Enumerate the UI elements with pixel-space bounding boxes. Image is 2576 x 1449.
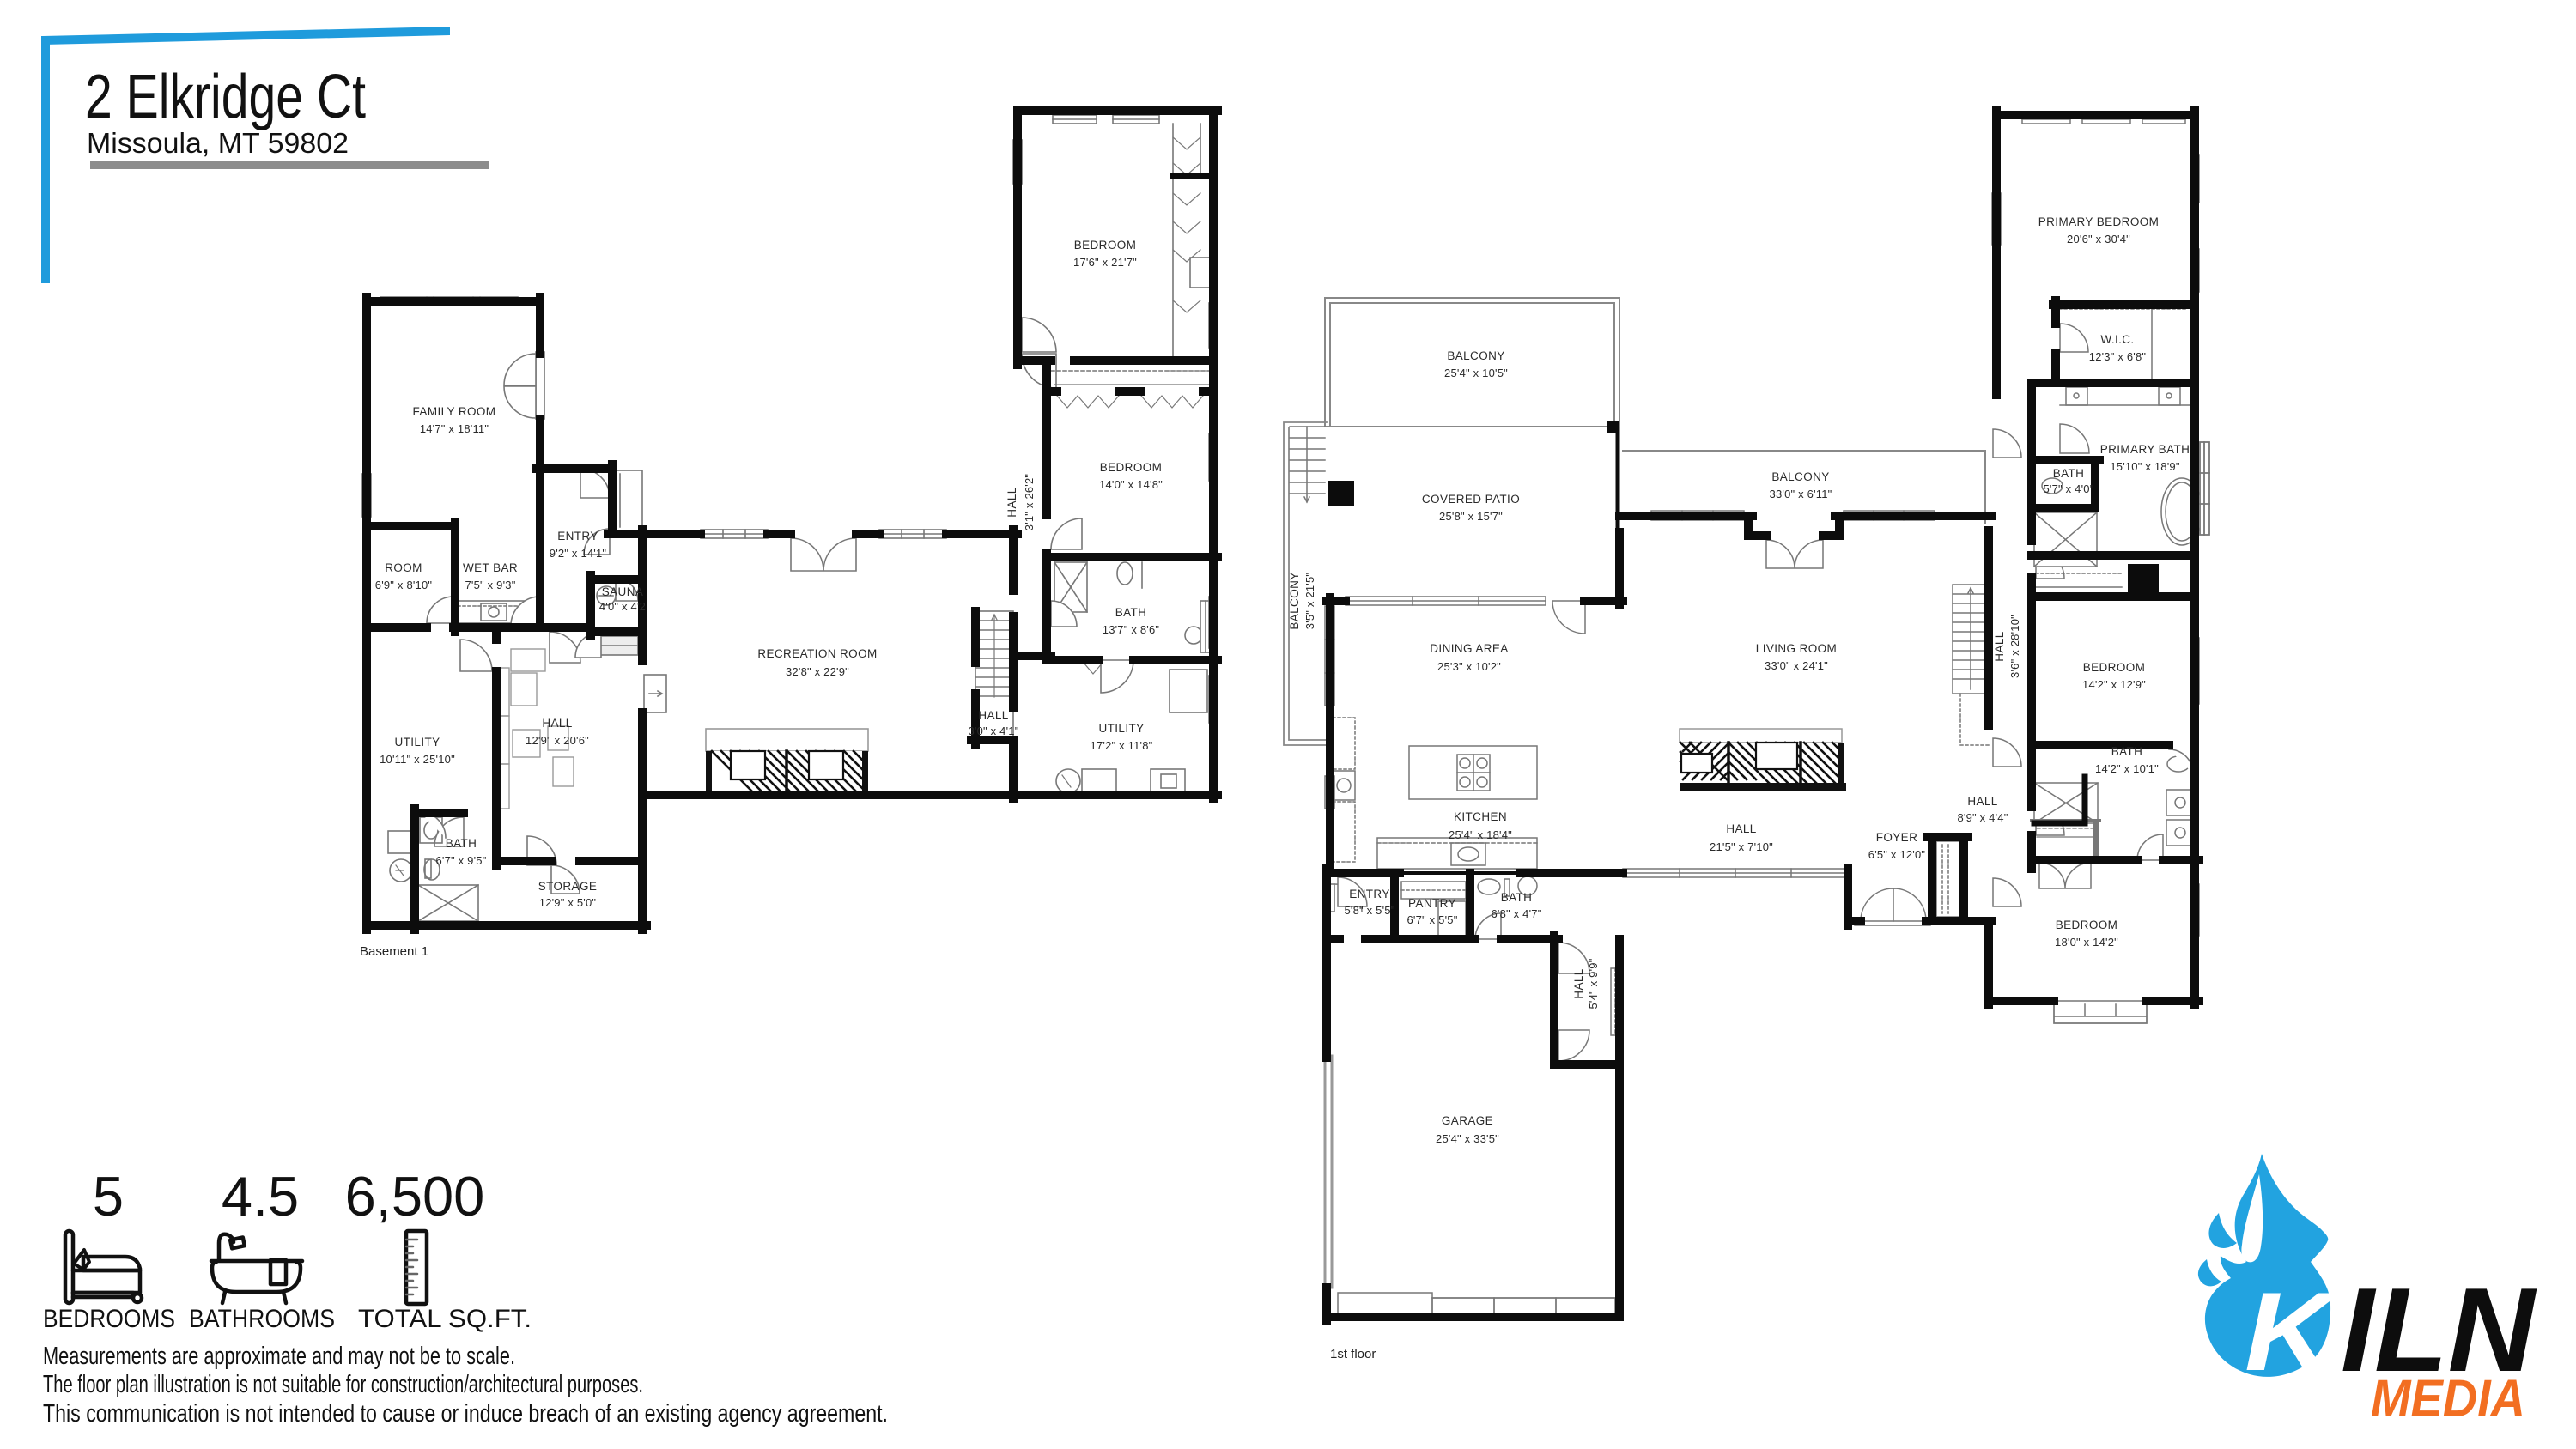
svg-text:Basement 1: Basement 1 — [360, 944, 428, 959]
svg-text:12'3" x 6'8": 12'3" x 6'8" — [2089, 350, 2147, 363]
svg-text:ENTRY: ENTRY — [557, 530, 598, 543]
svg-text:25'3" x 10'2": 25'3" x 10'2" — [1437, 660, 1501, 673]
svg-text:5'8" x 5'5": 5'8" x 5'5" — [1344, 904, 1394, 917]
svg-text:3'6" x 28'10": 3'6" x 28'10" — [2008, 615, 2021, 678]
svg-text:15'10" x 18'9": 15'10" x 18'9" — [2110, 460, 2180, 473]
svg-text:MEDIA: MEDIA — [2371, 1369, 2525, 1428]
svg-text:FOYER: FOYER — [1876, 831, 1918, 844]
svg-text:BATH: BATH — [1115, 606, 1147, 619]
svg-text:This communication is not inte: This communication is not intended to ca… — [43, 1400, 888, 1428]
svg-text:12'9" x 20'6": 12'9" x 20'6" — [526, 734, 589, 747]
svg-text:PRIMARY BEDROOM: PRIMARY BEDROOM — [2038, 215, 2160, 228]
svg-text:18'0" x 14'2": 18'0" x 14'2" — [2055, 936, 2118, 949]
svg-text:3'0" x 4'1": 3'0" x 4'1" — [968, 724, 1018, 737]
svg-text:BEDROOM: BEDROOM — [2056, 919, 2118, 931]
svg-text:UTILITY: UTILITY — [394, 736, 440, 749]
svg-text:8'9" x 4'4": 8'9" x 4'4" — [1957, 811, 2008, 824]
svg-text:7'5" x 9'3": 7'5" x 9'3" — [465, 579, 515, 591]
svg-text:Measurements are approximate a: Measurements are approximate and may not… — [43, 1343, 515, 1370]
svg-text:6'5" x 12'0": 6'5" x 12'0" — [1868, 848, 1926, 861]
svg-text:SAUNA: SAUNA — [602, 585, 644, 598]
svg-text:KITCHEN: KITCHEN — [1454, 810, 1507, 823]
svg-text:25'4" x 18'4": 25'4" x 18'4" — [1449, 828, 1512, 841]
svg-text:UTILITY: UTILITY — [1098, 722, 1144, 735]
svg-text:Missoula, MT 59802: Missoula, MT 59802 — [87, 127, 349, 159]
svg-text:HALL: HALL — [1993, 631, 2006, 661]
svg-text:5'7" x 4'0": 5'7" x 4'0" — [2043, 482, 2093, 495]
svg-text:BEDROOM: BEDROOM — [2083, 661, 2146, 674]
svg-text:BATH: BATH — [2111, 745, 2143, 758]
svg-text:BALCONY: BALCONY — [1288, 572, 1301, 629]
svg-text:12'9" x 5'0": 12'9" x 5'0" — [539, 896, 597, 909]
svg-text:20'6" x 30'4": 20'6" x 30'4" — [2067, 233, 2130, 246]
svg-text:COVERED PATIO: COVERED PATIO — [1422, 493, 1520, 506]
svg-text:17'6" x 21'7": 17'6" x 21'7" — [1073, 256, 1137, 269]
svg-text:3'5" x 21'5": 3'5" x 21'5" — [1303, 573, 1316, 630]
svg-text:1st floor: 1st floor — [1330, 1347, 1376, 1361]
svg-text:25'4" x 33'5": 25'4" x 33'5" — [1436, 1132, 1499, 1145]
svg-text:The floor plan illustration is: The floor plan illustration is not suita… — [43, 1371, 643, 1398]
svg-text:21'5" x 7'10": 21'5" x 7'10" — [1710, 840, 1773, 853]
svg-text:BATH: BATH — [446, 837, 477, 850]
svg-text:14'2" x 10'1": 14'2" x 10'1" — [2095, 762, 2159, 775]
svg-text:9'2" x 14'1": 9'2" x 14'1" — [550, 547, 607, 560]
svg-text:HALL: HALL — [1726, 822, 1756, 835]
svg-text:BATH: BATH — [2053, 467, 2085, 480]
svg-text:10'11" x 25'10": 10'11" x 25'10" — [380, 753, 455, 766]
svg-text:14'0" x 14'8": 14'0" x 14'8" — [1099, 478, 1163, 491]
svg-text:BATHROOMS: BATHROOMS — [189, 1305, 335, 1333]
svg-text:ENTRY: ENTRY — [1349, 888, 1390, 900]
svg-text:LIVING ROOM: LIVING ROOM — [1756, 642, 1837, 655]
svg-text:BEDROOMS: BEDROOMS — [43, 1305, 175, 1333]
svg-text:6'7" x 5'5": 6'7" x 5'5" — [1406, 913, 1457, 926]
svg-text:K: K — [2245, 1269, 2341, 1394]
svg-text:6'7" x 9'5": 6'7" x 9'5" — [435, 854, 486, 867]
svg-text:BALCONY: BALCONY — [1771, 470, 1829, 483]
svg-text:4.5: 4.5 — [222, 1165, 299, 1228]
svg-text:BEDROOM: BEDROOM — [1074, 239, 1137, 252]
svg-text:5: 5 — [93, 1165, 124, 1228]
svg-text:3'1" x 26'2": 3'1" x 26'2" — [1023, 474, 1036, 531]
svg-text:25'8" x 15'7": 25'8" x 15'7" — [1439, 510, 1503, 523]
svg-text:HALL: HALL — [1005, 487, 1018, 517]
svg-text:BATH: BATH — [1501, 891, 1533, 904]
svg-text:6'9" x 8'10": 6'9" x 8'10" — [375, 579, 433, 591]
svg-text:5'4" x 9'9": 5'4" x 9'9" — [1587, 958, 1600, 1009]
svg-text:13'7" x 8'6": 13'7" x 8'6" — [1103, 623, 1160, 636]
svg-text:17'2" x 11'8": 17'2" x 11'8" — [1091, 739, 1153, 752]
svg-text:14'2" x 12'9": 14'2" x 12'9" — [2082, 678, 2146, 691]
svg-text:DINING AREA: DINING AREA — [1430, 642, 1508, 655]
svg-text:HALL: HALL — [978, 709, 1008, 722]
svg-text:25'4" x 10'5": 25'4" x 10'5" — [1444, 367, 1508, 379]
svg-text:TOTAL SQ.FT.: TOTAL SQ.FT. — [358, 1305, 532, 1333]
svg-text:GARAGE: GARAGE — [1442, 1114, 1493, 1127]
svg-text:STORAGE: STORAGE — [538, 880, 598, 893]
svg-text:32'8" x 22'9": 32'8" x 22'9" — [786, 665, 849, 678]
svg-text:W.I.C.: W.I.C. — [2100, 333, 2134, 346]
svg-text:BALCONY: BALCONY — [1447, 349, 1504, 362]
svg-text:FAMILY ROOM: FAMILY ROOM — [413, 405, 496, 418]
svg-text:4'0" x 4'2: 4'0" x 4'2 — [599, 600, 646, 613]
svg-text:PRIMARY BATH: PRIMARY BATH — [2100, 443, 2190, 456]
svg-text:WET BAR: WET BAR — [463, 561, 518, 574]
svg-text:BEDROOM: BEDROOM — [1100, 461, 1163, 474]
svg-text:33'0" x 24'1": 33'0" x 24'1" — [1765, 659, 1828, 672]
svg-text:6,500: 6,500 — [345, 1165, 485, 1228]
svg-text:HALL: HALL — [1967, 795, 1997, 808]
svg-text:HALL: HALL — [1572, 968, 1585, 998]
svg-text:ROOM: ROOM — [385, 561, 422, 574]
svg-text:RECREATION ROOM: RECREATION ROOM — [757, 647, 877, 660]
svg-text:2 Elkridge Ct: 2 Elkridge Ct — [85, 63, 366, 131]
svg-text:33'0" x 6'11": 33'0" x 6'11" — [1770, 488, 1832, 500]
svg-text:PANTRY: PANTRY — [1408, 897, 1456, 910]
svg-text:14'7" x 18'11": 14'7" x 18'11" — [420, 422, 489, 435]
svg-text:HALL: HALL — [542, 717, 572, 730]
svg-text:6'8" x 4'7": 6'8" x 4'7" — [1491, 907, 1541, 920]
